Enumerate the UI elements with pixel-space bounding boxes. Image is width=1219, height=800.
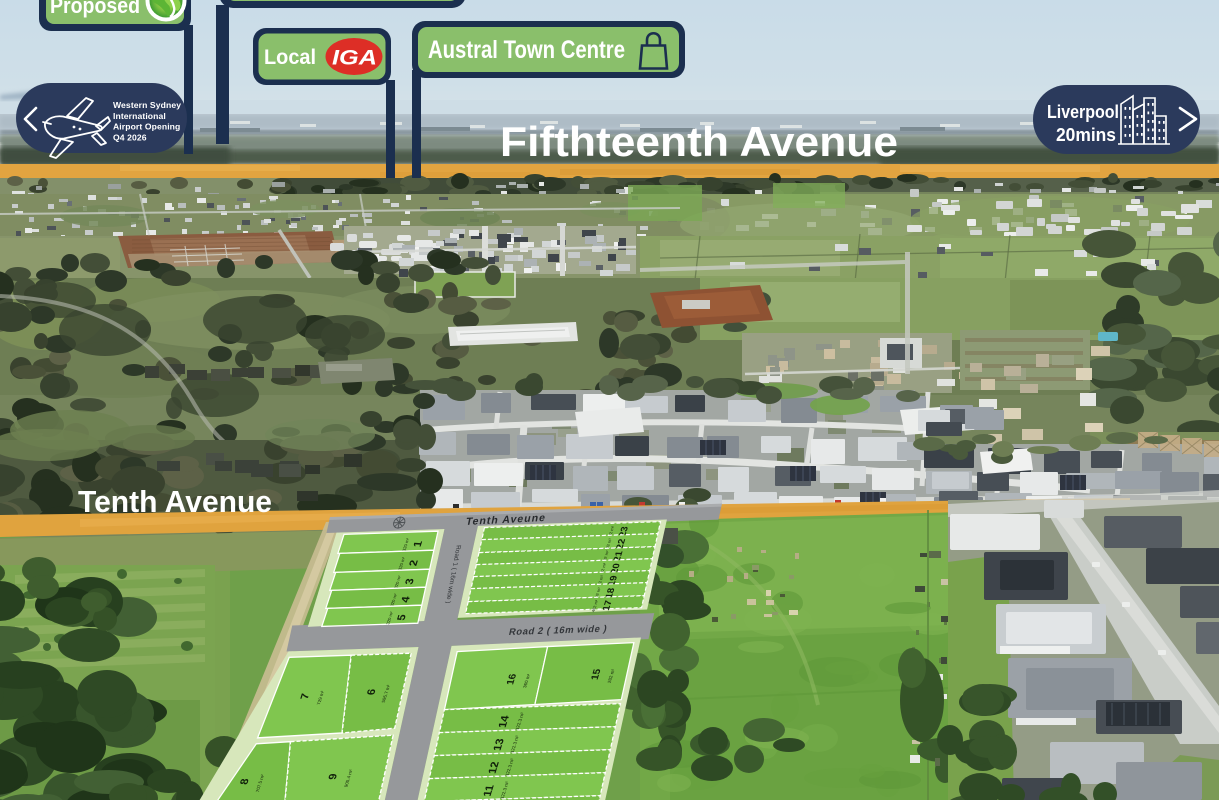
svg-text:1: 1 xyxy=(412,541,425,548)
svg-text:Fifthteenth Avenue: Fifthteenth Avenue xyxy=(500,118,898,165)
svg-text:International: International xyxy=(113,111,166,121)
svg-text:9: 9 xyxy=(327,773,340,780)
svg-text:20mins: 20mins xyxy=(1056,125,1116,145)
svg-text:8: 8 xyxy=(238,778,251,785)
svg-text:Tenth Avenue: Tenth Avenue xyxy=(78,484,272,519)
svg-text:Western Sydney: Western Sydney xyxy=(113,100,181,110)
svg-text:Austral Town Centre: Austral Town Centre xyxy=(428,36,625,64)
svg-text:Q4 2026: Q4 2026 xyxy=(113,132,147,142)
svg-text:6: 6 xyxy=(365,689,378,696)
svg-text:Local: Local xyxy=(264,46,316,69)
svg-text:5: 5 xyxy=(395,614,408,621)
svg-text:Proposed: Proposed xyxy=(50,0,140,18)
svg-text:2: 2 xyxy=(407,560,420,567)
svg-text:3: 3 xyxy=(403,578,416,585)
svg-text:Airport Opening: Airport Opening xyxy=(113,122,180,132)
svg-text:7: 7 xyxy=(299,693,312,700)
svg-text:IGA: IGA xyxy=(332,46,377,70)
svg-text:Liverpool: Liverpool xyxy=(1047,102,1119,122)
